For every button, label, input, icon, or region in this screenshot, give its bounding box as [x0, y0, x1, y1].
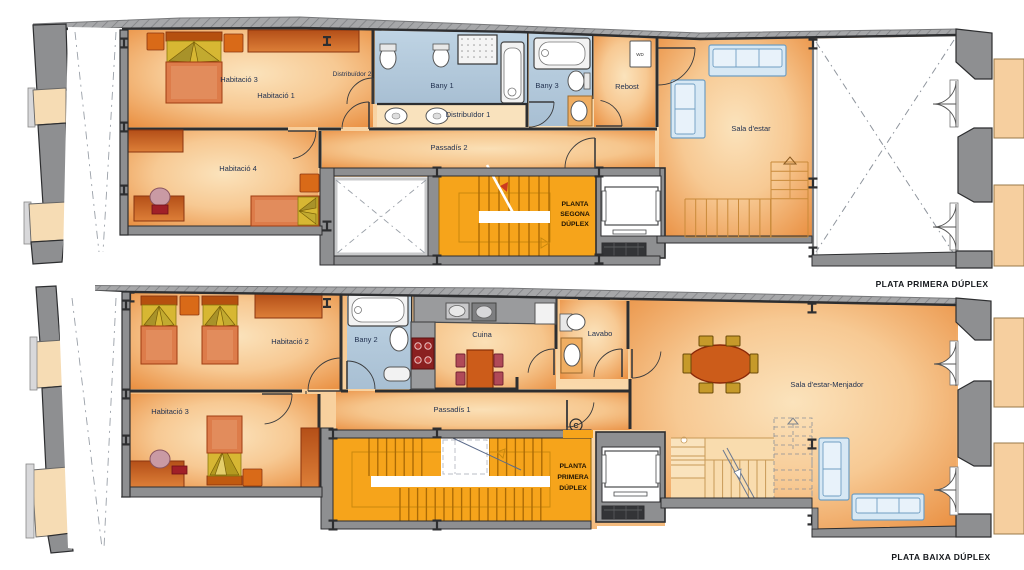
svg-text:PLANTA: PLANTA	[561, 201, 588, 208]
svg-text:DÚPLEX: DÚPLEX	[561, 219, 589, 228]
svg-text:PLANTA: PLANTA	[559, 463, 586, 470]
svg-text:Habitació 3: Habitació 3	[151, 407, 189, 416]
svg-text:Cuina: Cuina	[472, 330, 492, 339]
svg-text:Bany 2: Bany 2	[354, 335, 377, 344]
svg-text:Sala d'estar: Sala d'estar	[731, 124, 771, 133]
svg-text:DÚPLEX: DÚPLEX	[559, 483, 587, 492]
svg-text:Habitació 4: Habitació 4	[219, 164, 257, 173]
svg-text:Bany 1: Bany 1	[430, 81, 453, 90]
svg-text:Habitació 3: Habitació 3	[220, 75, 258, 84]
svg-text:Habitació 2: Habitació 2	[271, 337, 309, 346]
svg-text:Distribuïdor 2: Distribuïdor 2	[333, 71, 372, 78]
svg-text:Passadís 1: Passadís 1	[433, 405, 470, 414]
svg-text:Sala d'estar-Menjador: Sala d'estar-Menjador	[790, 380, 864, 389]
svg-text:PRIMERA: PRIMERA	[557, 474, 588, 481]
svg-text:Habitació 1: Habitació 1	[257, 91, 295, 100]
svg-text:PLATA BAIXA DÚPLEX: PLATA BAIXA DÚPLEX	[891, 551, 990, 562]
svg-text:Lavabo: Lavabo	[588, 329, 613, 338]
svg-text:SEGONA: SEGONA	[560, 211, 590, 218]
svg-text:C: C	[573, 423, 578, 430]
svg-text:PLATA PRIMERA DÚPLEX: PLATA PRIMERA DÚPLEX	[876, 278, 989, 289]
svg-text:Distribuïdor 1: Distribuïdor 1	[446, 110, 491, 119]
svg-text:Bany 3: Bany 3	[535, 81, 558, 90]
svg-text:Passadís 2: Passadís 2	[430, 143, 467, 152]
svg-text:Rebost: Rebost	[615, 82, 640, 91]
svg-text:WD: WD	[636, 52, 644, 57]
